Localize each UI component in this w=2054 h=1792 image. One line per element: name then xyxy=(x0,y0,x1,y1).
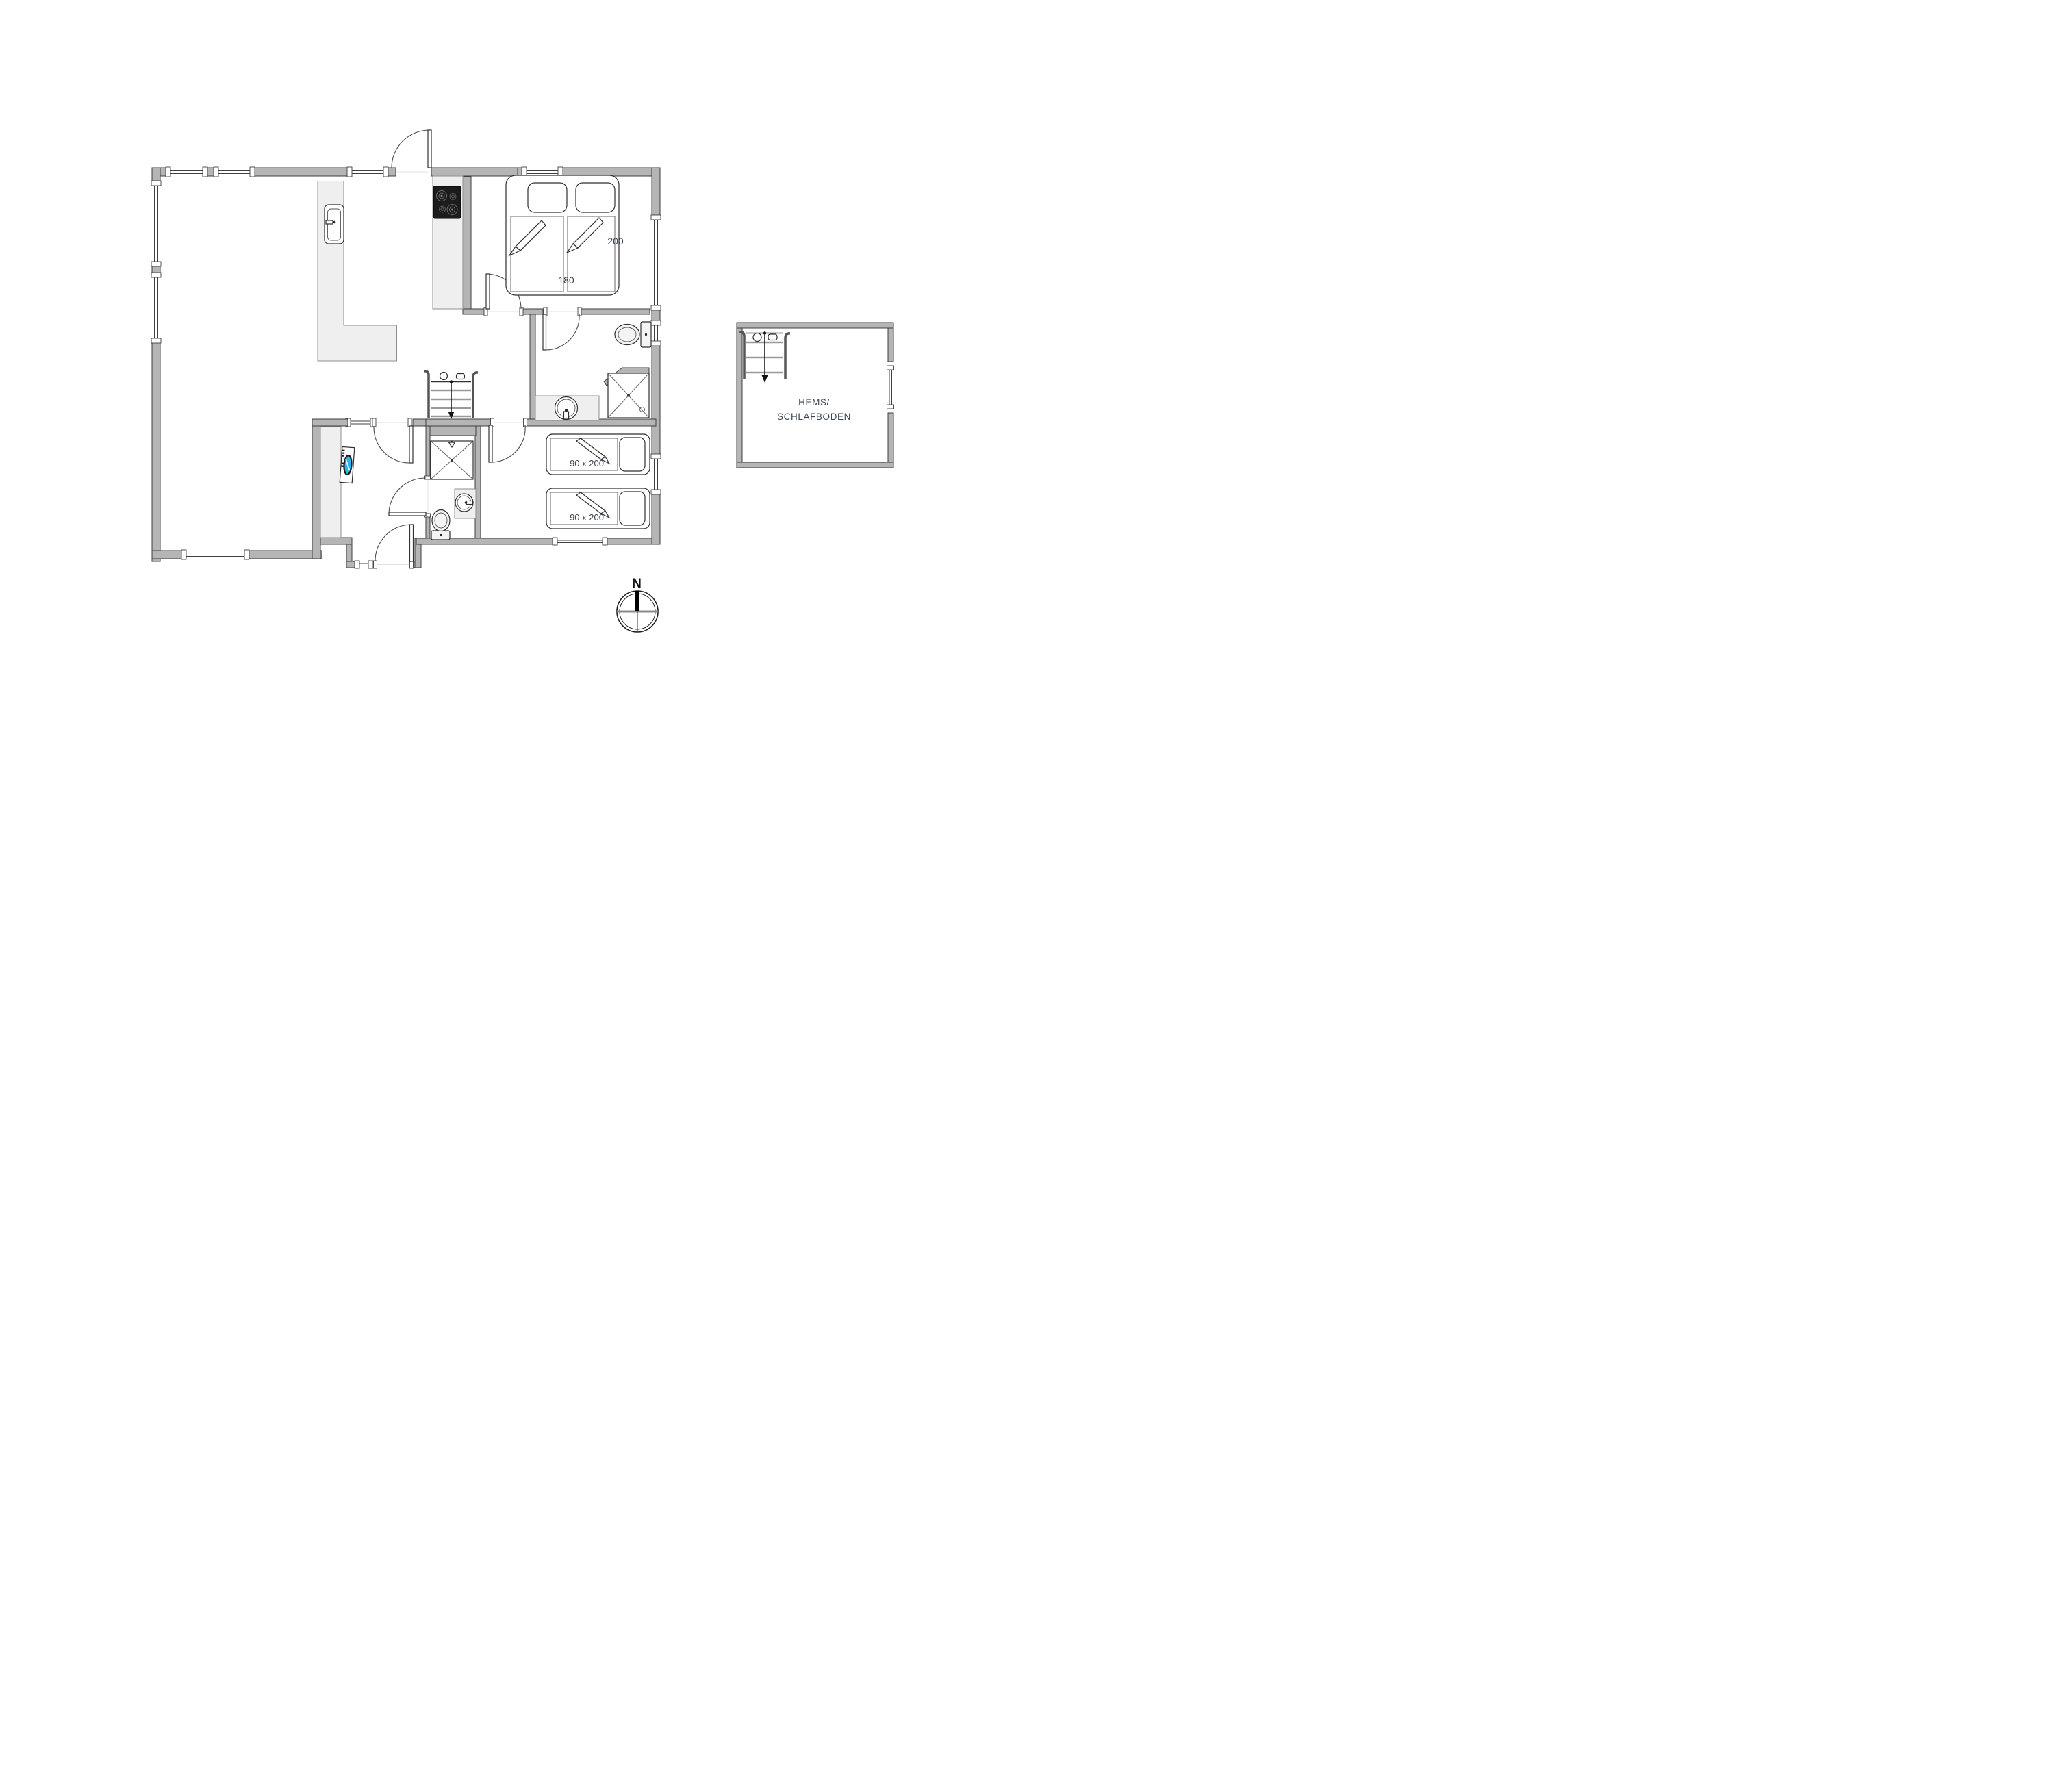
door-bathroom-second xyxy=(389,476,431,517)
window xyxy=(355,561,373,568)
bedroom-double: 200 180 xyxy=(506,175,624,295)
window xyxy=(166,167,207,177)
double-bed-width-label: 180 xyxy=(558,275,574,286)
interior-window xyxy=(346,418,375,427)
door-bathroom-main xyxy=(543,307,581,350)
window xyxy=(214,167,255,177)
compass-rose: N xyxy=(617,577,658,632)
toilet-icon xyxy=(431,510,450,540)
loft-ladder-icon xyxy=(739,331,790,383)
closet xyxy=(320,427,341,538)
kitchen-sink-icon xyxy=(325,205,344,244)
toilet-icon xyxy=(615,322,651,347)
window xyxy=(151,273,161,343)
bathroom-second xyxy=(431,441,476,540)
window xyxy=(181,550,249,559)
cooktop-icon xyxy=(433,186,461,218)
loft-label-line1: HEMS/ xyxy=(798,397,830,407)
floor-plan-page: 200 180 xyxy=(0,0,1027,896)
shower-icon xyxy=(431,441,473,480)
window xyxy=(651,320,661,346)
washbasin-icon xyxy=(455,489,476,518)
loft-label-line2: SCHLAFBODEN xyxy=(777,412,851,422)
corner-shower-icon xyxy=(604,368,649,418)
door-bedroom-twin xyxy=(489,418,527,462)
window xyxy=(651,215,661,310)
north-needle-icon xyxy=(635,591,639,611)
window xyxy=(151,181,161,266)
bathroom-main xyxy=(535,322,651,420)
door-hallway xyxy=(372,418,413,463)
bedroom-twin: 90 x 200 90 x 200 xyxy=(546,434,650,529)
window xyxy=(347,167,388,177)
washbasin-icon xyxy=(535,396,599,420)
window xyxy=(887,366,894,409)
single-bed: 90 x 200 xyxy=(546,488,650,529)
door-kitchen-exterior xyxy=(392,130,431,172)
washing-machine-icon xyxy=(340,446,355,483)
compass-north-label: N xyxy=(632,577,642,591)
floor-plan-drawing: 200 180 xyxy=(0,0,1027,896)
door-entrance xyxy=(374,525,414,568)
kitchen xyxy=(318,176,463,361)
double-bed-length-label: 200 xyxy=(607,236,624,247)
loft-room: HEMS/ SCHLAFBODEN xyxy=(737,323,894,468)
single-bed-1-label: 90 x 200 xyxy=(570,458,604,468)
window xyxy=(651,454,661,494)
window xyxy=(553,538,607,545)
loft-ladder-icon xyxy=(424,371,478,419)
single-bed: 90 x 200 xyxy=(546,434,650,475)
single-bed-2-label: 90 x 200 xyxy=(570,512,604,522)
